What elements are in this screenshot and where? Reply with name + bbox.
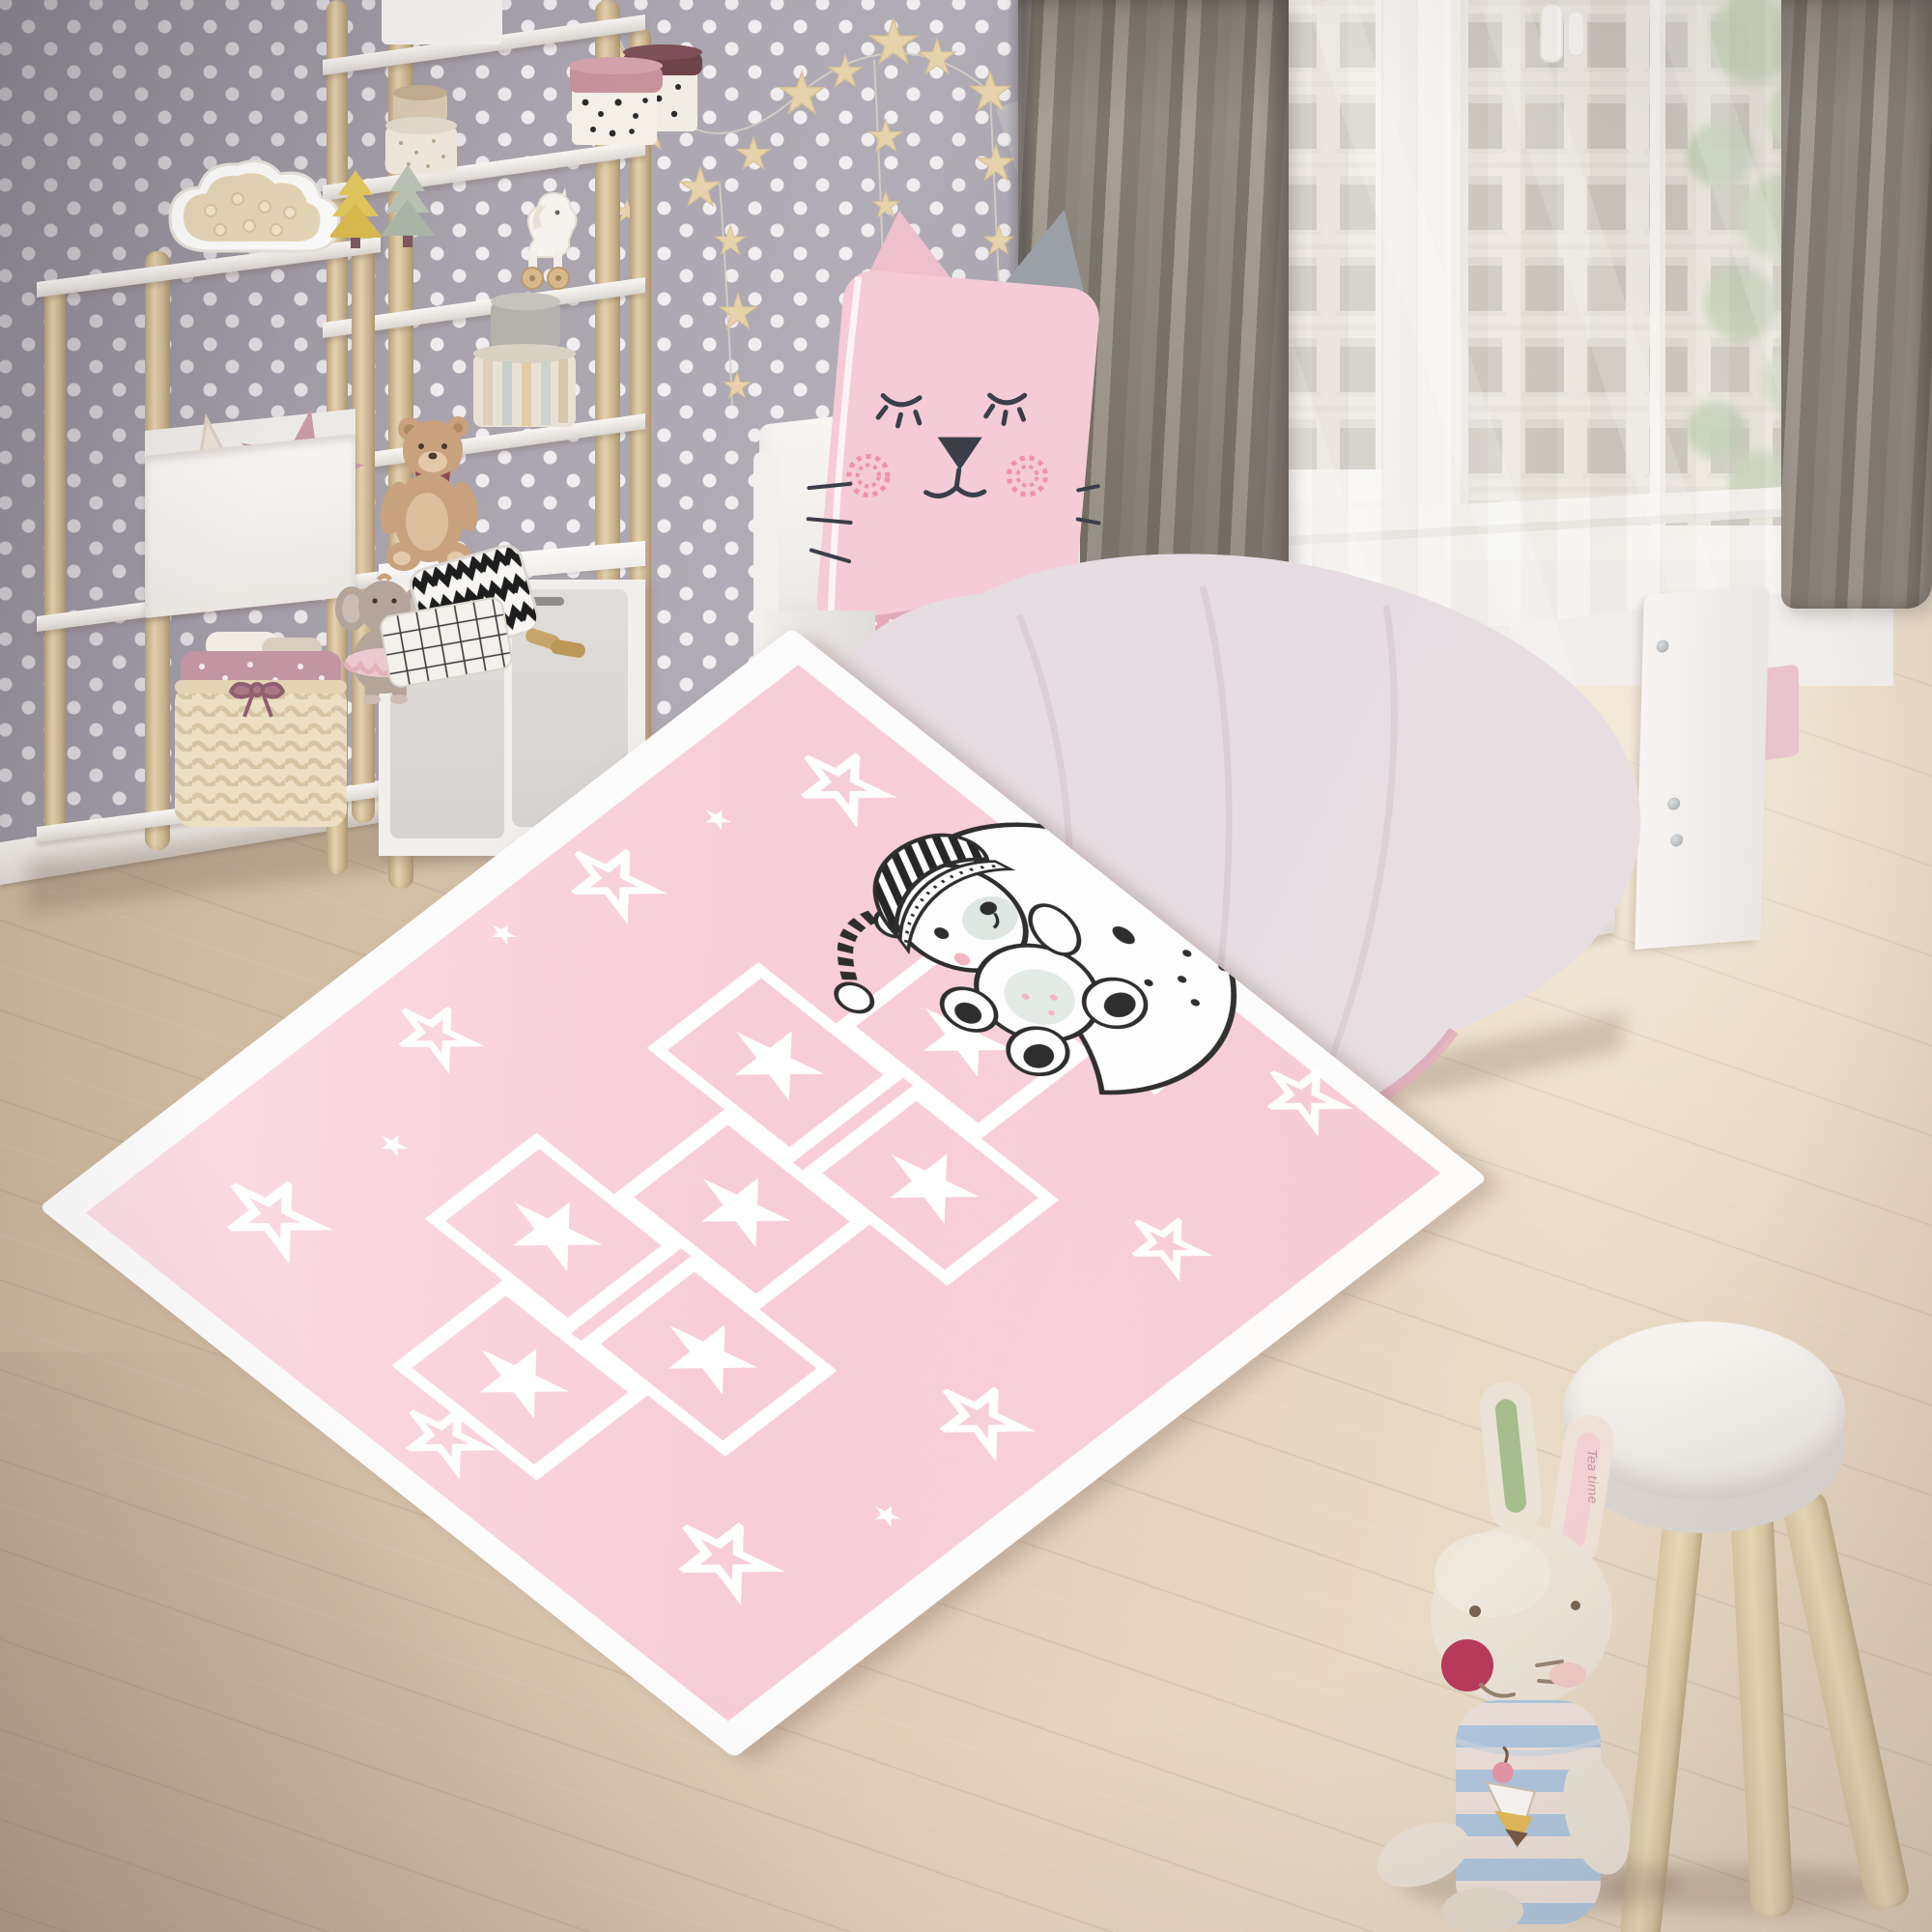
shelf-pole	[44, 288, 66, 835]
gold-doll-shoes	[522, 622, 589, 668]
unicorn-pull-toy	[505, 184, 582, 292]
dalmatian-dot-boxes	[570, 39, 717, 149]
white-box-top	[382, 0, 502, 44]
grey-curtain-right	[1781, 0, 1932, 609]
wicker-basket	[169, 630, 353, 835]
yellow-tree	[330, 170, 383, 248]
sage-tree	[381, 164, 435, 247]
striped-box-stack	[466, 290, 586, 431]
wooden-trees	[330, 162, 437, 251]
front-dot-box	[570, 57, 663, 145]
teddy-bear-plush	[377, 410, 483, 574]
round-box-stack	[380, 68, 467, 178]
bunny-foot	[1442, 1888, 1523, 1932]
bunny-ear-left	[1477, 1379, 1545, 1535]
basket-body	[175, 684, 347, 827]
hair-bow	[379, 576, 390, 580]
cloud-night-light	[153, 151, 346, 267]
bunny-ear-text: Tea time	[1584, 1450, 1600, 1504]
bunny-nose	[1441, 1639, 1493, 1691]
bunny-plush: Tea time	[1367, 1325, 1686, 1932]
room-photo: Tea time	[0, 0, 1932, 1932]
bin-front	[145, 434, 355, 618]
